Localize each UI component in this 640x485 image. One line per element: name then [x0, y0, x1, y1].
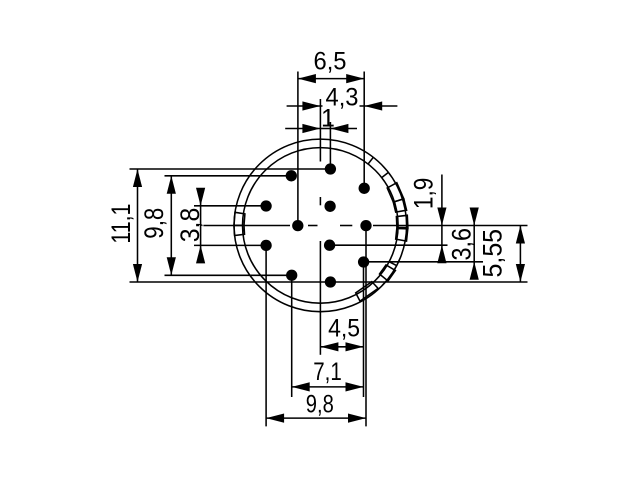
svg-text:1: 1 [321, 104, 335, 132]
svg-text:3,8: 3,8 [175, 208, 205, 243]
svg-text:9,8: 9,8 [139, 208, 169, 239]
svg-text:5,55: 5,55 [477, 229, 507, 277]
svg-text:6,5: 6,5 [314, 48, 347, 76]
svg-text:1,9: 1,9 [409, 178, 439, 210]
svg-text:7,1: 7,1 [313, 358, 342, 386]
svg-text:3,6: 3,6 [447, 228, 477, 261]
svg-text:11,1: 11,1 [106, 204, 136, 244]
svg-text:9,8: 9,8 [306, 391, 334, 419]
svg-text:4,5: 4,5 [328, 314, 360, 342]
